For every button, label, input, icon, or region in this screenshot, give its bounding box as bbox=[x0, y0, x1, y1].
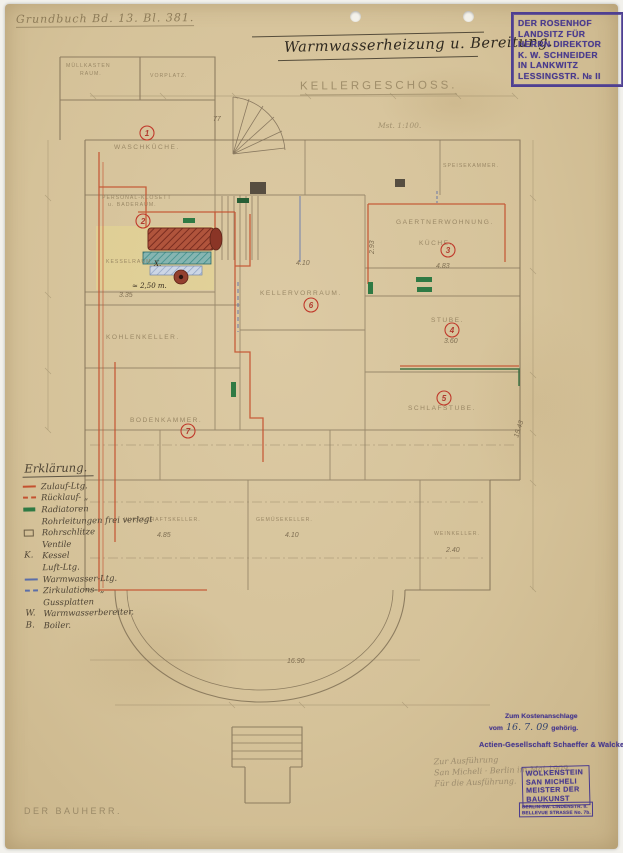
stamp-word-gehoerig: gehörig. bbox=[551, 725, 578, 732]
room-label: GEMÜSEKELLER. bbox=[256, 516, 313, 523]
stamp-word-vom: vom bbox=[489, 725, 503, 732]
stamp-line: LESSINGSTR. № II bbox=[518, 71, 618, 82]
room-label: KELLERVORRAUM. bbox=[260, 290, 342, 297]
stamp-line: IN LANKWITZ bbox=[518, 60, 618, 71]
room-label: WEINKELLER. bbox=[434, 531, 480, 537]
room-label: VORPLATZ. bbox=[150, 73, 187, 79]
room-label: STUBE. bbox=[431, 317, 464, 324]
room-number: 4 bbox=[449, 326, 455, 335]
room-label: u. BADERAUM. bbox=[108, 202, 157, 208]
room-number: 3 bbox=[446, 246, 451, 255]
legend-label: Zirkulations- „ bbox=[43, 584, 104, 595]
stamp-line: DER ROSENHOF bbox=[518, 18, 618, 29]
dim-label: 16.90 bbox=[287, 658, 305, 665]
room-number: 6 bbox=[309, 301, 314, 310]
bauherr-label: DER BAUHERR. bbox=[24, 806, 122, 816]
room-number: 7 bbox=[186, 427, 191, 436]
grundbuch-note: Grundbuch Bd. 13. Bl. 381. bbox=[16, 11, 194, 28]
room-label: KESSELRAUM. bbox=[106, 259, 154, 265]
legend-label: Warmwasserbereiter. bbox=[43, 607, 134, 619]
room-label: WASCHKÜCHE. bbox=[114, 143, 180, 151]
room-label: RAUM. bbox=[80, 71, 102, 77]
legend-symbol-hot-water-line bbox=[25, 578, 43, 580]
stamp-line: LANDSITZ FÜR bbox=[518, 29, 618, 40]
dim-label: 3.60 bbox=[444, 338, 458, 345]
room-number: 5 bbox=[442, 394, 447, 403]
legend-label: Warmwasser-Ltg. bbox=[43, 572, 118, 584]
room-label: BODENKAMMER. bbox=[130, 417, 202, 424]
hand-note: X. bbox=[153, 260, 161, 268]
scale-note: Mst. 1:100. bbox=[378, 121, 421, 130]
address-stamp: BERLIN-SW. LINDENSTR. 8. BELLEVUE STRASS… bbox=[519, 802, 593, 818]
legend-label: Gussplatten bbox=[43, 596, 94, 607]
legend-symbol-return-line bbox=[23, 497, 41, 499]
dim-label: 4.10 bbox=[296, 260, 310, 267]
room-label: SCHLAFSTUBE. bbox=[408, 405, 476, 412]
legend-label: Zulauf-Ltg. bbox=[41, 480, 88, 491]
legend-label: Ventile bbox=[42, 538, 72, 549]
dim-label: 15.43 bbox=[513, 420, 525, 439]
legend-symbol-radiator bbox=[23, 507, 41, 511]
room-label: PERSONAL-KLOSETT bbox=[102, 195, 172, 201]
legend-label: Radiatoren bbox=[41, 503, 88, 514]
dim-label: 3.35 bbox=[119, 292, 133, 299]
legend-label: Rohrschlitze bbox=[42, 526, 95, 537]
legend-label: Kessel bbox=[42, 550, 69, 561]
legend-title: Erklärung. bbox=[22, 460, 93, 477]
dim-label: 77 bbox=[213, 116, 222, 123]
hand-note: ≈ 2,50 m. bbox=[132, 282, 167, 290]
stamp-line: HERRN DIREKTOR bbox=[518, 39, 618, 50]
stamp-line: K. W. SCHNEIDER bbox=[518, 50, 618, 61]
handwritten-date: 16. 7. 09 bbox=[506, 722, 548, 733]
room-number: 1 bbox=[145, 129, 150, 138]
room-label: KOHLENKELLER. bbox=[106, 334, 180, 341]
legend-symbol-pipe-slot bbox=[24, 529, 42, 536]
chimney-block bbox=[250, 179, 405, 194]
dim-label: 2.40 bbox=[445, 547, 460, 554]
floor-label: KELLERGESCHOSS. bbox=[300, 79, 458, 95]
radiators bbox=[183, 198, 432, 397]
legend-symbol-warmwasserbereiter: W. bbox=[25, 609, 43, 619]
dim-label: 4.83 bbox=[436, 263, 450, 270]
room-label: SPEISEKAMMER. bbox=[443, 163, 499, 169]
punch-hole bbox=[350, 11, 361, 22]
dim-label: 4.10 bbox=[285, 532, 299, 539]
legend-symbol-supply-line bbox=[23, 485, 41, 487]
owner-address-stamp: DER ROSENHOF LANDSITZ FÜR HERRN DIREKTOR… bbox=[511, 12, 623, 87]
legend-label: Luft-Ltg. bbox=[42, 561, 79, 572]
room-number: 2 bbox=[140, 217, 146, 226]
legend: Erklärung. Zulauf-Ltg. Rücklauf- „ Radia… bbox=[22, 454, 186, 631]
legend-label: Rücklauf- „ bbox=[41, 492, 88, 503]
stamp-line: BELLEVUE STRASSE No. 7b. bbox=[522, 809, 590, 815]
cost-estimate-stamp-line2: vom16. 7. 09gehörig. bbox=[489, 722, 578, 733]
dim-label: 2.93 bbox=[369, 240, 376, 255]
legend-symbol-kessel: K. bbox=[24, 551, 42, 561]
room-label: MÜLLKASTEN bbox=[66, 62, 111, 69]
legend-symbol-boiler: B. bbox=[26, 620, 44, 630]
scanned-plan-sheet: MÜLLKASTEN RAUM. VORPLATZ. SPEISEKAMMER.… bbox=[0, 0, 623, 853]
staircase-fan bbox=[233, 97, 285, 154]
punch-hole bbox=[463, 11, 474, 22]
company-stamp: Actien-Gesellschaft Schaeffer & Walcker bbox=[479, 740, 623, 749]
cost-estimate-stamp-line1: Zum Kostenanschlage bbox=[505, 713, 578, 720]
legend-symbol-circulation-line bbox=[25, 589, 43, 591]
room-label: GAERTNERWOHNUNG. bbox=[396, 219, 494, 226]
legend-label: Boiler. bbox=[44, 620, 71, 631]
